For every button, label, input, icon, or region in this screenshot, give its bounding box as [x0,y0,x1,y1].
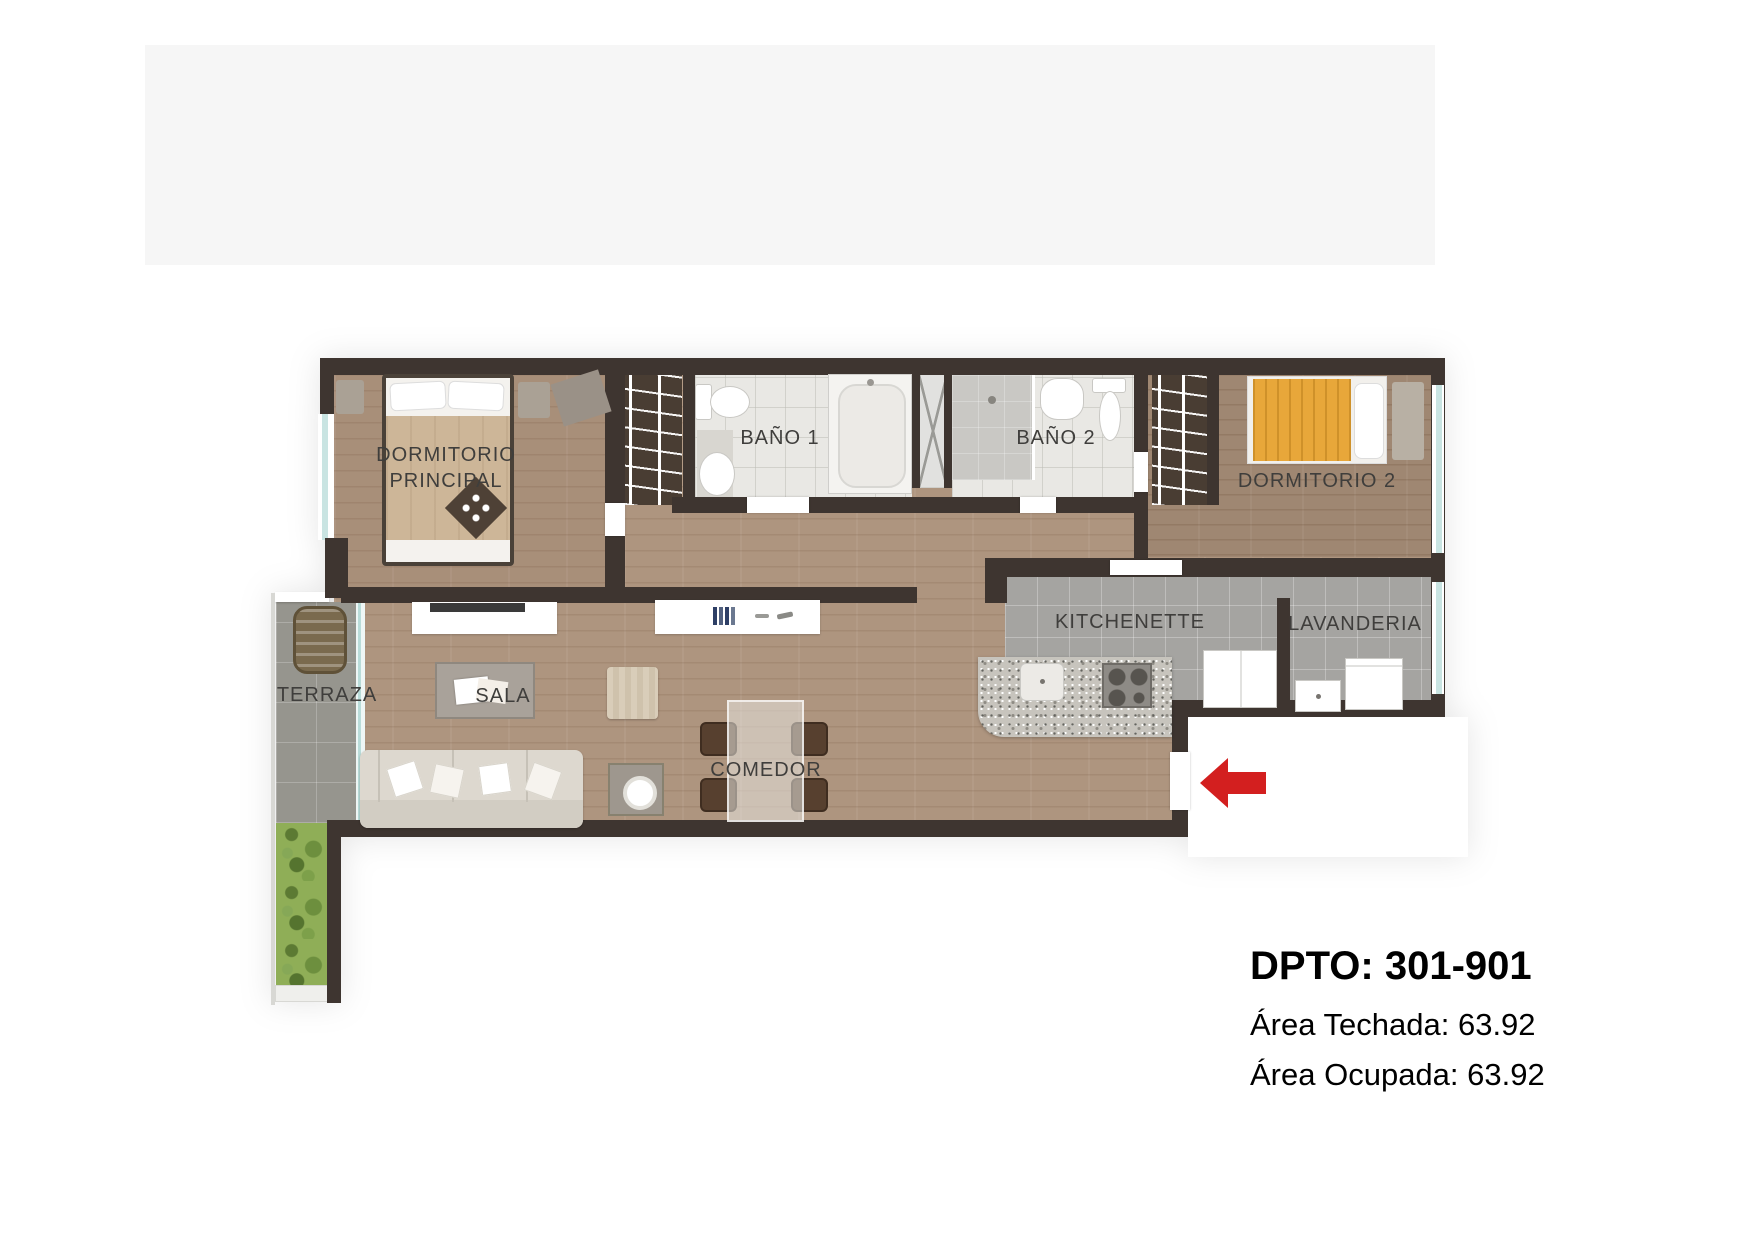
label-kitchenette: KITCHENETTE [1055,609,1205,635]
laundry-sink [1295,680,1341,712]
area-ocupada: Área Ocupada: 63.92 [1250,1057,1710,1093]
wall-bath-bottom [672,497,1147,513]
shower-head-icon [988,396,996,404]
wall-planter [327,820,341,1003]
nightstand-right [518,382,550,418]
window-dormitorio-principal [318,414,334,540]
toilet-bano2-bowl [1099,391,1121,441]
unit-info: DPTO: 301-901 Área Techada: 63.92 Área O… [1250,944,1710,1093]
kitchen-sink [1020,663,1064,701]
label-comedor: COMEDOR [710,757,821,783]
side-table [608,763,664,816]
sink-bano1 [699,452,735,496]
wall-shaft-left [912,374,920,488]
label-bano-1: BAÑO 1 [740,425,819,451]
label-dormitorio-2: DORMITORIO 2 [1238,468,1396,494]
closet-rail [658,372,661,505]
bench [607,667,658,719]
wall-closet2-right [1207,374,1219,505]
sofa [360,750,583,828]
window-dormitorio-2 [1432,385,1444,553]
planter-plants [276,823,329,987]
terraza-railing [271,593,275,1005]
closet-2 [1152,374,1207,505]
wall-dormp-right-low [605,536,625,587]
header-band [145,45,1435,265]
dorm2-desk [1392,382,1424,460]
door-dormitorio-2 [1110,560,1182,575]
wall-top [320,358,1445,375]
planter-base [275,985,333,1002]
label-bano-2: BAÑO 2 [1016,425,1095,451]
wall-entry-lower [1172,810,1188,837]
wall-left-upper [320,358,334,416]
sink-bano2 [1040,378,1084,420]
wall-dormp-right [605,374,625,503]
entrance-arrow-icon [1200,758,1266,808]
door-dormitorio-principal [605,503,625,536]
wall-bano1-left [683,374,695,500]
door-bano-2 [1020,497,1056,513]
sideboard [655,600,820,634]
window-lavanderia [1432,582,1444,694]
bed-2 [1247,376,1387,464]
nightstand-left [336,380,364,414]
closet-rail [1158,374,1161,505]
closet-1 [625,372,682,505]
unit-title: DPTO: 301-901 [1250,944,1710,989]
door-bano2-side [1134,452,1148,492]
wall-kitchen-top [985,558,1445,577]
area-techada: Área Techada: 63.92 [1250,1007,1710,1043]
washing-machine [1345,658,1403,710]
tv [430,603,525,612]
wall-entry-upper [1172,717,1188,752]
label-sala: SALA [475,683,530,709]
terraza-sill [275,592,329,602]
fridge [1203,650,1277,708]
wall-divider-living [341,587,917,603]
door-bano-1 [747,497,809,513]
wall-bano2-right-upper [1134,374,1148,452]
tv-stand [412,602,557,634]
terraza-chair [293,606,347,674]
wall-bano2-right-lower [1134,492,1148,558]
bathtub [828,374,912,494]
closet-rail [629,372,632,505]
label-dormitorio-principal: DORMITORIO PRINCIPAL [376,442,516,494]
entrance-door [1170,752,1190,810]
toilet-bano1-bowl [710,386,750,418]
closet-rail [1182,374,1185,505]
wall-shaft-right [944,374,952,488]
label-lavanderia: LAVANDERIA [1288,611,1422,637]
stove [1102,663,1152,708]
label-terraza: TERRAZA [277,682,377,708]
